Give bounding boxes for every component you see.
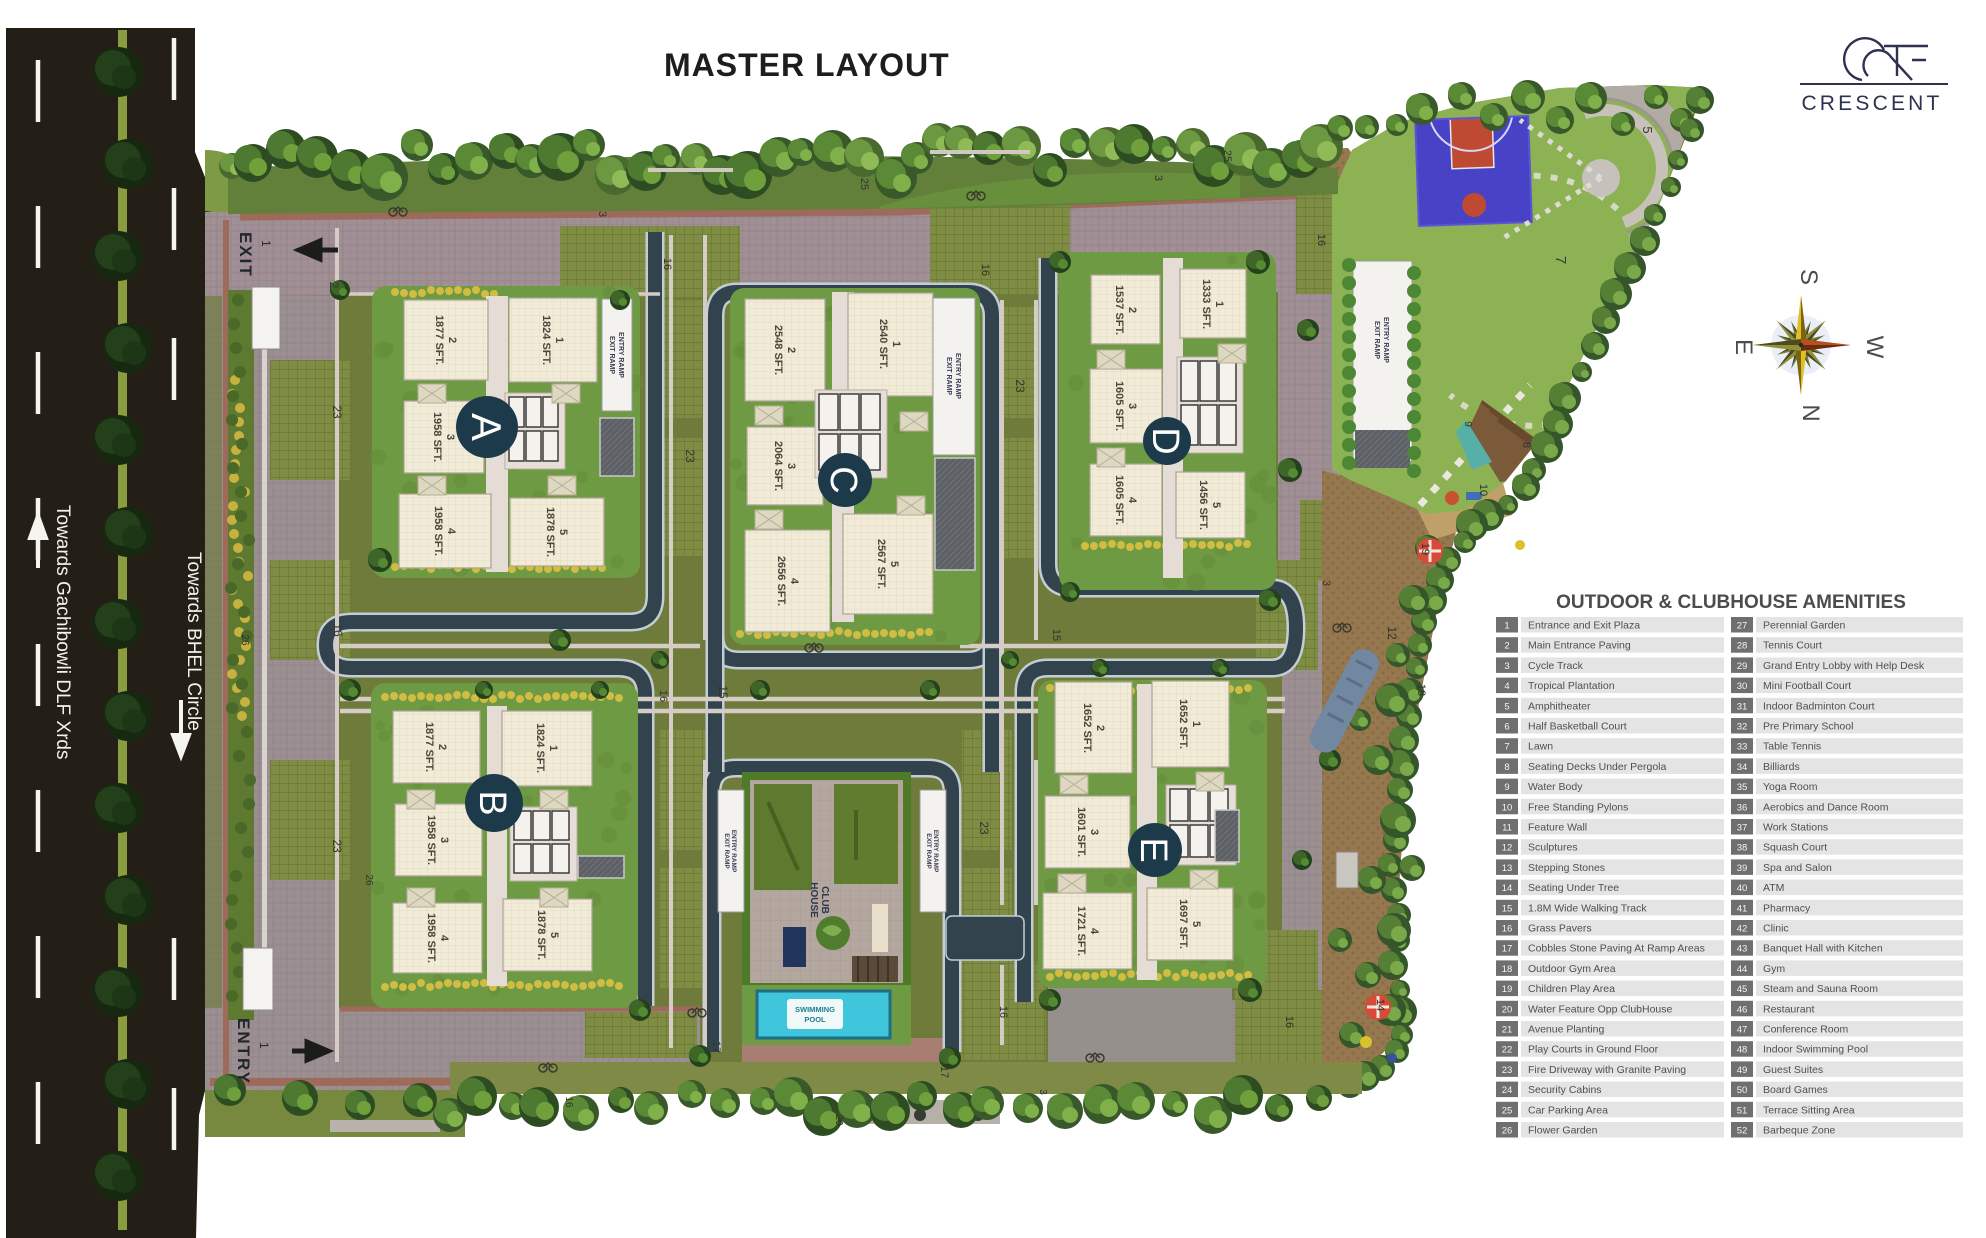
svg-text:13: 13 bbox=[1502, 863, 1513, 874]
svg-text:19: 19 bbox=[1502, 984, 1513, 995]
svg-text:27: 27 bbox=[1737, 621, 1748, 632]
svg-text:17: 17 bbox=[1502, 944, 1513, 955]
svg-text:26: 26 bbox=[363, 874, 374, 886]
svg-text:16: 16 bbox=[979, 264, 991, 276]
svg-text:Barbeque Zone: Barbeque Zone bbox=[1763, 1125, 1836, 1137]
svg-text:31: 31 bbox=[1737, 701, 1748, 712]
svg-text:Towards Gachibowli DLF Xrds: Towards Gachibowli DLF Xrds bbox=[52, 505, 73, 759]
svg-text:16: 16 bbox=[1315, 234, 1327, 246]
svg-text:1.8M Wide Walking Track: 1.8M Wide Walking Track bbox=[1528, 902, 1647, 914]
svg-text:Feature Wall: Feature Wall bbox=[1528, 822, 1587, 834]
svg-text:14: 14 bbox=[1502, 883, 1513, 894]
svg-text:28: 28 bbox=[1737, 641, 1748, 652]
svg-text:Water Feature Opp ClubHouse: Water Feature Opp ClubHouse bbox=[1528, 1003, 1673, 1015]
svg-text:MASTER LAYOUT: MASTER LAYOUT bbox=[664, 47, 950, 83]
svg-text:3: 3 bbox=[1504, 661, 1509, 672]
svg-text:Seating Under Tree: Seating Under Tree bbox=[1528, 882, 1619, 894]
svg-text:Work Stations: Work Stations bbox=[1763, 822, 1828, 834]
svg-text:Amphitheater: Amphitheater bbox=[1528, 700, 1591, 712]
svg-text:23: 23 bbox=[330, 839, 344, 853]
svg-text:Towards BHEL Circle: Towards BHEL Circle bbox=[183, 552, 204, 731]
svg-text:17: 17 bbox=[710, 1041, 722, 1053]
svg-text:CLUBHOUSE: CLUBHOUSE bbox=[808, 882, 830, 918]
svg-text:Board Games: Board Games bbox=[1763, 1084, 1828, 1096]
svg-text:Table Tennis: Table Tennis bbox=[1763, 741, 1821, 753]
svg-text:35: 35 bbox=[1737, 782, 1748, 793]
svg-text:3: 3 bbox=[1320, 580, 1332, 586]
svg-text:45: 45 bbox=[1737, 984, 1748, 995]
svg-text:Seating Decks Under Pergola: Seating Decks Under Pergola bbox=[1528, 761, 1666, 773]
svg-text:Mini Football Court: Mini Football Court bbox=[1763, 680, 1851, 692]
svg-text:1: 1 bbox=[257, 1042, 271, 1049]
svg-text:Guest Suites: Guest Suites bbox=[1763, 1064, 1823, 1076]
svg-text:17: 17 bbox=[938, 1066, 950, 1078]
svg-text:9: 9 bbox=[1462, 421, 1473, 427]
svg-text:50: 50 bbox=[1737, 1085, 1748, 1096]
svg-text:E: E bbox=[1730, 339, 1757, 355]
svg-text:52: 52 bbox=[1737, 1126, 1748, 1137]
svg-text:Lawn: Lawn bbox=[1528, 741, 1553, 753]
svg-text:Banquet Hall with Kitchen: Banquet Hall with Kitchen bbox=[1763, 943, 1883, 955]
svg-text:41: 41 bbox=[1737, 903, 1748, 914]
svg-text:12: 12 bbox=[1502, 843, 1513, 854]
svg-text:N: N bbox=[1797, 404, 1824, 421]
svg-text:Spa and Salon: Spa and Salon bbox=[1763, 862, 1832, 874]
svg-text:37: 37 bbox=[1737, 823, 1748, 834]
svg-text:15: 15 bbox=[1050, 629, 1062, 641]
svg-text:Security Cabins: Security Cabins bbox=[1528, 1084, 1602, 1096]
svg-text:Yoga Room: Yoga Room bbox=[1763, 781, 1818, 793]
svg-text:20: 20 bbox=[1502, 1004, 1513, 1015]
svg-text:Grand Entry Lobby with Help De: Grand Entry Lobby with Help Desk bbox=[1763, 660, 1925, 672]
svg-text:Sculptures: Sculptures bbox=[1528, 842, 1578, 854]
svg-text:15: 15 bbox=[716, 685, 730, 699]
svg-text:Tropical Plantation: Tropical Plantation bbox=[1528, 680, 1615, 692]
svg-text:34: 34 bbox=[1737, 762, 1748, 773]
svg-text:33: 33 bbox=[1737, 742, 1748, 753]
svg-text:E: E bbox=[1132, 837, 1174, 862]
svg-text:25: 25 bbox=[1221, 150, 1233, 162]
svg-text:3: 3 bbox=[1152, 175, 1164, 181]
svg-text:44: 44 bbox=[1737, 964, 1748, 975]
svg-text:16: 16 bbox=[1283, 1016, 1295, 1028]
svg-text:16: 16 bbox=[997, 1006, 1009, 1018]
svg-text:16: 16 bbox=[1502, 924, 1513, 935]
svg-text:Flower Garden: Flower Garden bbox=[1528, 1125, 1598, 1137]
svg-text:48: 48 bbox=[1737, 1045, 1748, 1056]
svg-text:26: 26 bbox=[239, 634, 250, 646]
svg-text:Aerobics and Dance Room: Aerobics and Dance Room bbox=[1763, 801, 1889, 813]
svg-text:ENTRY: ENTRY bbox=[234, 1018, 253, 1085]
svg-text:16: 16 bbox=[657, 690, 669, 702]
svg-text:Restaurant: Restaurant bbox=[1763, 1003, 1814, 1015]
svg-text:W: W bbox=[1861, 336, 1888, 359]
svg-text:CRESCENT: CRESCENT bbox=[1801, 92, 1942, 115]
svg-text:20: 20 bbox=[833, 1114, 844, 1126]
svg-text:Main Entrance Paving: Main Entrance Paving bbox=[1528, 640, 1631, 652]
svg-text:6: 6 bbox=[1504, 722, 1509, 733]
svg-text:43: 43 bbox=[1737, 944, 1748, 955]
svg-text:Conference Room: Conference Room bbox=[1763, 1024, 1848, 1036]
svg-text:Tennis Court: Tennis Court bbox=[1763, 640, 1822, 652]
svg-text:Outdoor Gym Area: Outdoor Gym Area bbox=[1528, 963, 1616, 975]
svg-text:A: A bbox=[463, 413, 510, 441]
svg-text:1: 1 bbox=[1504, 621, 1509, 632]
svg-text:16: 16 bbox=[563, 1096, 574, 1108]
svg-text:5: 5 bbox=[1504, 701, 1509, 712]
svg-text:ENTRY RAMPEXIT RAMP: ENTRY RAMPEXIT RAMP bbox=[925, 830, 939, 873]
svg-text:ENTRY RAMPEXIT RAMP: ENTRY RAMPEXIT RAMP bbox=[723, 830, 737, 873]
svg-text:29: 29 bbox=[1737, 661, 1748, 672]
svg-text:2: 2 bbox=[327, 282, 341, 289]
svg-text:14: 14 bbox=[1374, 999, 1386, 1011]
svg-text:Fire Driveway with Granite Pav: Fire Driveway with Granite Paving bbox=[1528, 1064, 1686, 1076]
svg-text:S: S bbox=[1795, 269, 1822, 285]
svg-text:Clinic: Clinic bbox=[1763, 923, 1789, 935]
svg-text:23: 23 bbox=[683, 449, 697, 463]
svg-text:Terrace Sitting Area: Terrace Sitting Area bbox=[1763, 1104, 1855, 1116]
svg-text:Avenue Planting: Avenue Planting bbox=[1528, 1024, 1604, 1036]
svg-text:Indoor Badminton Court: Indoor Badminton Court bbox=[1763, 700, 1875, 712]
svg-text:22: 22 bbox=[1502, 1045, 1513, 1056]
svg-text:11: 11 bbox=[1502, 823, 1512, 834]
svg-text:10: 10 bbox=[1502, 802, 1513, 813]
svg-text:26: 26 bbox=[1502, 1126, 1513, 1137]
svg-text:Cycle Track: Cycle Track bbox=[1528, 660, 1584, 672]
svg-text:OUTDOOR & CLUBHOUSE AMENITIES: OUTDOOR & CLUBHOUSE AMENITIES bbox=[1556, 592, 1906, 613]
svg-text:D: D bbox=[1144, 427, 1186, 454]
svg-text:32: 32 bbox=[1737, 722, 1748, 733]
svg-text:C: C bbox=[822, 466, 864, 493]
svg-text:ATM: ATM bbox=[1763, 882, 1784, 894]
svg-text:36: 36 bbox=[1737, 802, 1748, 813]
svg-text:16: 16 bbox=[661, 258, 673, 270]
svg-text:5: 5 bbox=[1640, 126, 1655, 133]
svg-text:42: 42 bbox=[1737, 924, 1748, 935]
svg-text:Perennial Garden: Perennial Garden bbox=[1763, 620, 1845, 632]
svg-text:12: 12 bbox=[1385, 626, 1399, 640]
svg-text:18: 18 bbox=[1502, 964, 1513, 975]
svg-text:Steam and Sauna Room: Steam and Sauna Room bbox=[1763, 983, 1878, 995]
svg-text:47: 47 bbox=[1737, 1025, 1748, 1036]
svg-text:Car Parking Area: Car Parking Area bbox=[1528, 1104, 1608, 1116]
svg-text:25: 25 bbox=[858, 178, 870, 190]
svg-text:Grass Pavers: Grass Pavers bbox=[1528, 923, 1592, 935]
svg-text:19: 19 bbox=[1419, 543, 1431, 555]
svg-text:B: B bbox=[471, 790, 513, 815]
svg-text:Free Standing Pylons: Free Standing Pylons bbox=[1528, 801, 1628, 813]
svg-text:15: 15 bbox=[1502, 903, 1513, 914]
svg-text:51: 51 bbox=[1737, 1105, 1748, 1116]
svg-text:9: 9 bbox=[1504, 782, 1509, 793]
svg-text:Gym: Gym bbox=[1763, 963, 1785, 975]
svg-text:Stepping Stones: Stepping Stones bbox=[1528, 862, 1605, 874]
svg-text:Billiards: Billiards bbox=[1763, 761, 1800, 773]
svg-text:Indoor Swimming Pool: Indoor Swimming Pool bbox=[1763, 1044, 1868, 1056]
svg-text:Children Play Area: Children Play Area bbox=[1528, 983, 1615, 995]
svg-text:7: 7 bbox=[1504, 742, 1509, 753]
svg-text:Cobbles Stone Paving At Ramp A: Cobbles Stone Paving At Ramp Areas bbox=[1528, 943, 1705, 955]
svg-text:23: 23 bbox=[330, 405, 344, 419]
svg-text:21: 21 bbox=[1502, 1025, 1513, 1036]
svg-text:Half Basketball Court: Half Basketball Court bbox=[1528, 721, 1627, 733]
svg-text:Water Body: Water Body bbox=[1528, 781, 1583, 793]
svg-text:POOL: POOL bbox=[804, 1015, 826, 1024]
svg-text:EXIT: EXIT bbox=[236, 232, 255, 278]
svg-text:18: 18 bbox=[1415, 684, 1427, 696]
svg-text:46: 46 bbox=[1737, 1004, 1748, 1015]
svg-text:Pharmacy: Pharmacy bbox=[1763, 902, 1811, 914]
svg-text:Play Courts in Ground Floor: Play Courts in Ground Floor bbox=[1528, 1044, 1659, 1056]
svg-text:30: 30 bbox=[1737, 681, 1748, 692]
svg-text:40: 40 bbox=[1737, 883, 1748, 894]
svg-text:38: 38 bbox=[1737, 843, 1748, 854]
svg-text:1: 1 bbox=[259, 240, 273, 247]
svg-text:25: 25 bbox=[1502, 1105, 1513, 1116]
svg-text:3: 3 bbox=[596, 211, 608, 217]
svg-text:SWIMMING: SWIMMING bbox=[795, 1005, 835, 1014]
svg-text:10: 10 bbox=[1477, 484, 1489, 496]
svg-text:8: 8 bbox=[1520, 442, 1532, 448]
svg-text:Pre Primary School: Pre Primary School bbox=[1763, 721, 1853, 733]
svg-text:24: 24 bbox=[1502, 1085, 1513, 1096]
svg-text:49: 49 bbox=[1737, 1065, 1748, 1076]
svg-text:39: 39 bbox=[1737, 863, 1748, 874]
svg-text:16: 16 bbox=[331, 623, 345, 637]
svg-text:7: 7 bbox=[1552, 256, 1569, 264]
svg-text:Entrance and Exit Plaza: Entrance and Exit Plaza bbox=[1528, 620, 1640, 632]
svg-text:23: 23 bbox=[1013, 379, 1027, 393]
svg-text:23: 23 bbox=[977, 821, 991, 835]
svg-text:3: 3 bbox=[1037, 1089, 1048, 1095]
svg-text:4: 4 bbox=[1504, 681, 1509, 692]
svg-text:2: 2 bbox=[1504, 641, 1509, 652]
svg-text:8: 8 bbox=[1504, 762, 1509, 773]
svg-text:Squash Court: Squash Court bbox=[1763, 842, 1827, 854]
svg-text:23: 23 bbox=[1502, 1065, 1513, 1076]
